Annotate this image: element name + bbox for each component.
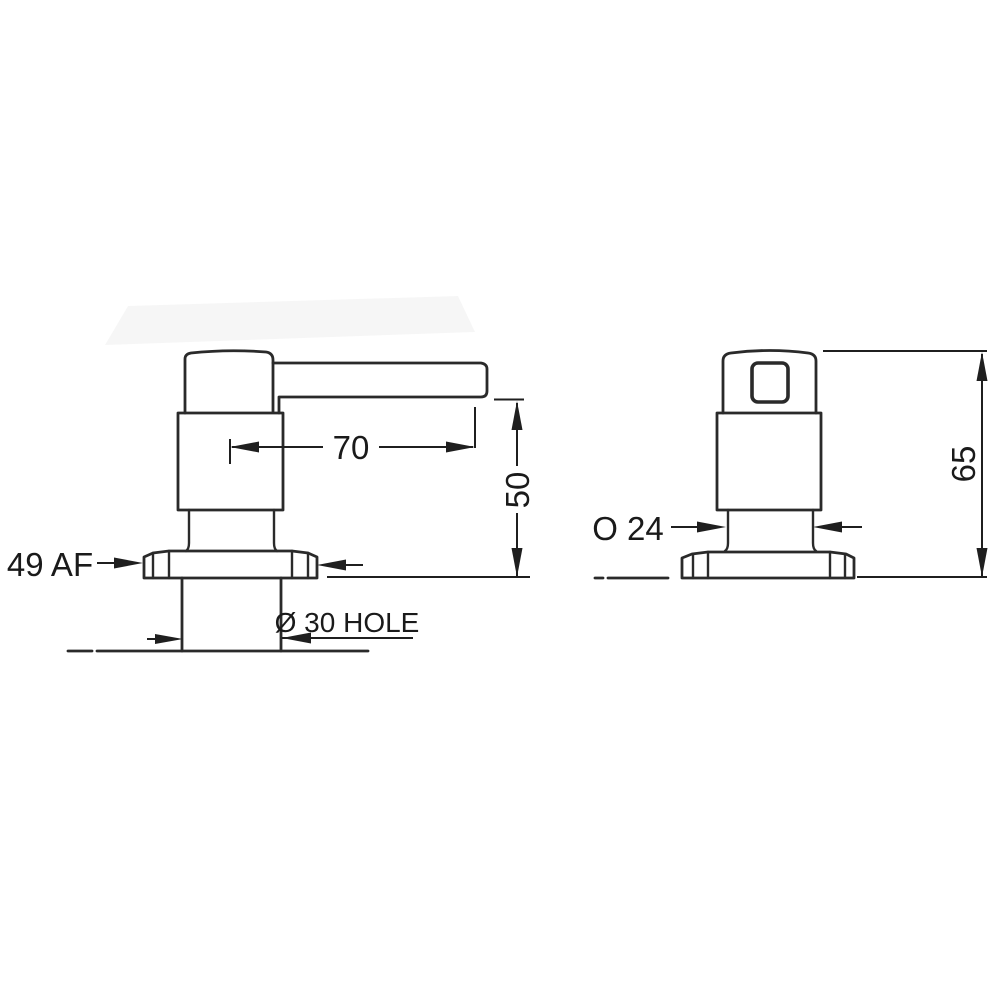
neck-outline: [186, 510, 277, 551]
dim-label-o24: O 24: [592, 510, 664, 547]
spout-outline: [273, 363, 487, 413]
head-outline: [185, 351, 273, 413]
dim-label-50: 50: [499, 472, 536, 509]
dim-50: 50: [327, 400, 536, 578]
drawing-canvas: 70 50 49 AF Ø 30 HOL: [0, 0, 1000, 1000]
dim-label-49af: 49 AF: [7, 546, 93, 583]
arrowhead-right: [697, 522, 726, 533]
arrowhead-right: [446, 442, 475, 453]
drawing-page: 70 50 49 AF Ø 30 HOL: [0, 0, 1000, 1000]
arrowhead-right: [155, 634, 183, 644]
arrowhead-left: [317, 560, 346, 571]
arrowhead-left: [813, 522, 842, 533]
dim-dia30-hole: Ø 30 HOLE: [147, 607, 419, 644]
outlet-square: [752, 363, 788, 402]
dim-65: 65: [823, 351, 988, 577]
arrowhead-right: [114, 558, 143, 569]
dim-label-65: 65: [945, 446, 982, 483]
arrowhead-down: [977, 548, 988, 577]
arrowhead-left: [230, 442, 259, 453]
arrowhead-up: [512, 401, 523, 430]
body-outline: [717, 413, 821, 510]
arrowhead-up: [977, 352, 988, 381]
dim-70: 70: [230, 407, 475, 466]
neck-outline: [725, 510, 816, 551]
dim-label-dia30-hole: Ø 30 HOLE: [275, 607, 420, 638]
arrowhead-down: [512, 548, 523, 577]
dim-label-70: 70: [333, 429, 370, 466]
side-view: [68, 351, 487, 651]
scan-shading: [105, 296, 475, 345]
dimensions: 70 50 49 AF Ø 30 HOL: [7, 351, 988, 644]
